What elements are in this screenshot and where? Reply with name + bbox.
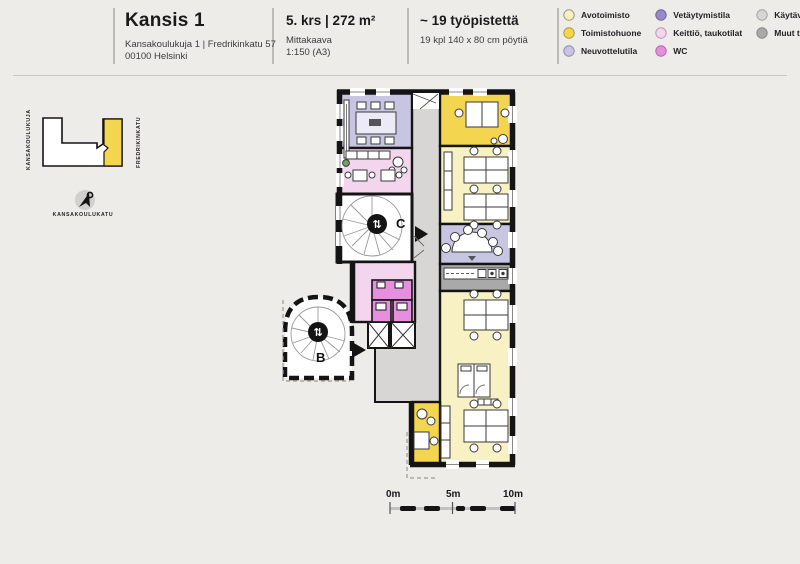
stair-updown-icon: ⇅ [372,219,381,231]
stair-updown-icon: ⇅ [313,327,322,339]
street-label-right: FREDRIKINKATU [136,117,142,168]
scale-0m: 0m [386,489,401,500]
floor-plan-canvas: KANSAKOULUKUJA FREDRIKINKATU KANSAKOULUK… [0,0,800,564]
stair-b-label: B [316,350,325,365]
entrance-arrow-b-icon [352,342,366,358]
stair-c-label: C [396,216,406,231]
lift-shafts [368,322,415,348]
furniture-kitchenette [444,268,508,279]
scale-5m: 5m [446,489,461,500]
floor-plan: ⇅ C ⇅ B [283,88,517,478]
scale-bar: 0m 5m 10m [386,489,523,514]
floorplan-page: { "header": { "title": "Kansis 1", "addr… [0,0,800,564]
street-label-left: KANSAKOULUKUJA [26,109,32,170]
scale-10m: 10m [503,489,523,500]
site-minimap: KANSAKOULUKUJA FREDRIKINKATU KANSAKOULUK… [26,109,142,218]
street-label-bottom: KANSAKOULUKATU [53,212,114,218]
north-arrow-icon [75,190,95,210]
site-highlighted-building [104,119,122,166]
